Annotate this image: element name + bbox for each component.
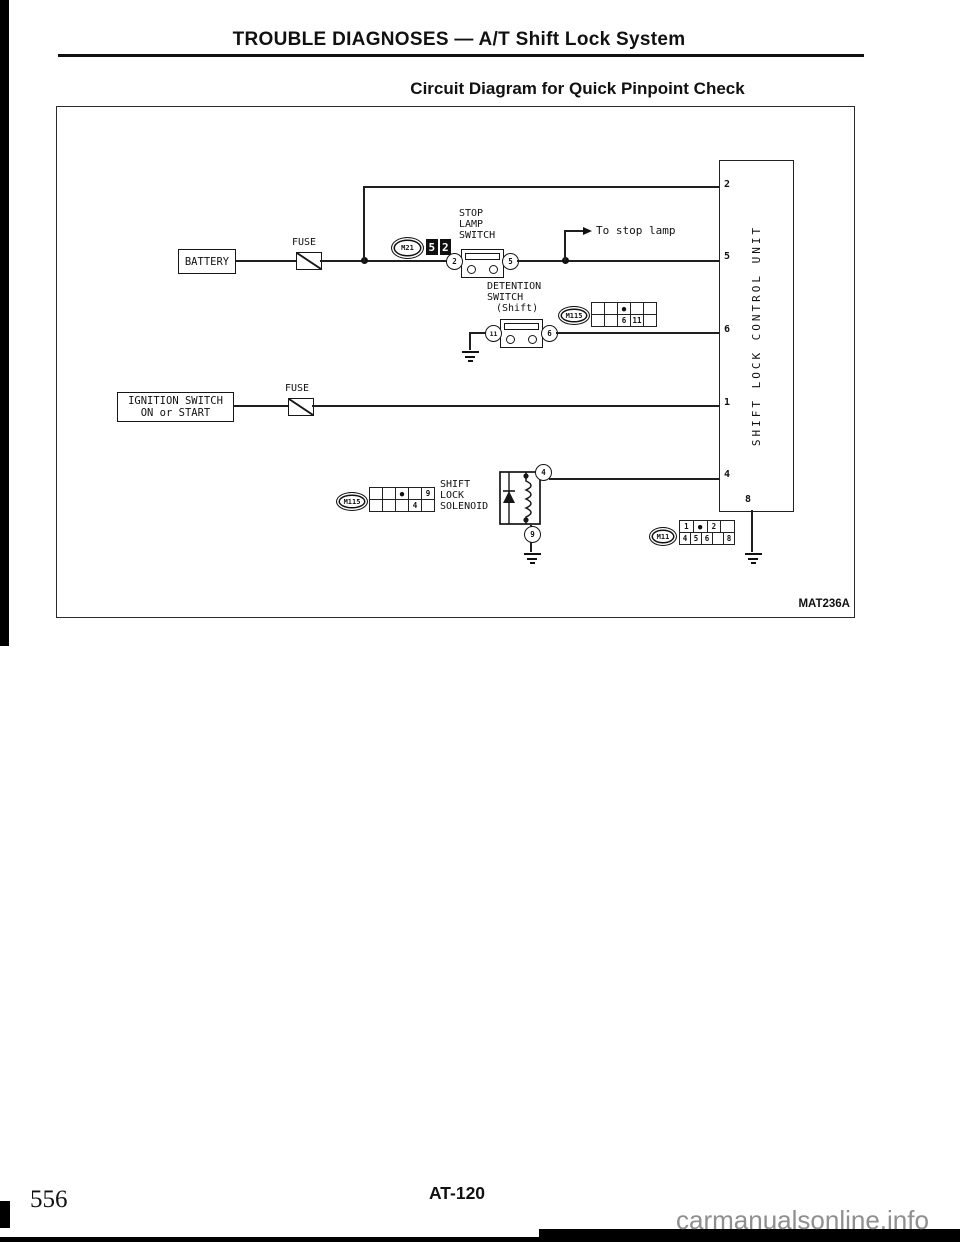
ignition-switch-label-1: IGNITION SWITCH — [128, 395, 223, 407]
wire-detention-to-unit6 — [556, 332, 719, 334]
to-stop-lamp-label: To stop lamp — [596, 225, 675, 236]
fuse-symbol-battery — [296, 252, 322, 270]
unit-terminal-4: 4 — [724, 469, 730, 480]
wire-stop-lamp-riser — [564, 231, 566, 261]
terminal-circle-detention-11: 11 — [485, 325, 502, 342]
fuse-symbol-ignition — [288, 398, 314, 416]
unit-terminal-6: 6 — [724, 324, 730, 335]
page-number: 556 — [30, 1186, 68, 1214]
scan-edge-mark — [0, 1201, 10, 1228]
switch-contact-bar — [504, 323, 539, 330]
stop-lamp-switch-label-2: LAMP — [459, 219, 483, 230]
wire-top-terminal2 — [363, 186, 719, 188]
wire-solenoid-to-unit4 — [549, 478, 719, 480]
wire-battery-to-fuse — [236, 260, 296, 262]
switch-contact-point — [489, 265, 498, 274]
detention-switch-symbol — [500, 319, 543, 348]
connector-grid-m115-solenoid: ●94 — [369, 487, 435, 512]
solenoid-label-2: LOCK — [440, 490, 464, 501]
connector-grid-m115-detention: ●611 — [591, 302, 657, 327]
wire-fuse-to-stop-switch — [320, 260, 448, 262]
detention-switch-label-2: SWITCH — [487, 292, 523, 303]
switch-contact-point — [506, 335, 515, 344]
ground-symbol-detention — [461, 351, 479, 362]
terminal-circle-solenoid-9: 9 — [524, 526, 541, 543]
manual-page: TROUBLE DIAGNOSES — A/T Shift Lock Syste… — [0, 0, 960, 1242]
unit-terminal-8: 8 — [745, 494, 751, 505]
solenoid-label-1: SHIFT — [440, 479, 470, 490]
detention-switch-label-3: (Shift) — [496, 303, 538, 314]
unit-terminal-5: 5 — [724, 251, 730, 262]
wire-fuse-to-unit1 — [312, 405, 719, 407]
wire-riser-to-terminal2 — [363, 187, 365, 262]
connector-oval-m21: M21 — [391, 237, 424, 259]
stop-lamp-switch-label-1: STOP — [459, 208, 483, 219]
control-unit-label: SHIFT LOCK CONTROL UNIT — [751, 224, 764, 445]
connector-oval-m11: M11 — [649, 527, 677, 546]
page-header-title: TROUBLE DIAGNOSES — A/T Shift Lock Syste… — [0, 29, 918, 51]
scan-edge-strip — [0, 0, 9, 646]
wire-ignition-to-fuse — [233, 405, 288, 407]
fuse-battery-label: FUSE — [292, 237, 316, 248]
terminal-circle-stop-2: 2 — [446, 253, 463, 270]
unit-terminal-1: 1 — [724, 397, 730, 408]
control-unit-label-wrap: SHIFT LOCK CONTROL UNIT — [733, 162, 781, 508]
switch-contact-point — [528, 335, 537, 344]
connector-m21-label: M21 — [401, 244, 414, 252]
battery-label: BATTERY — [185, 256, 229, 268]
wire-detention-ground-drop — [469, 332, 471, 350]
shift-lock-solenoid-symbol — [499, 471, 541, 526]
figure-code: MAT236A — [795, 598, 850, 610]
ground-symbol-solenoid — [523, 553, 541, 564]
ignition-switch-label-2: ON or START — [141, 407, 211, 419]
diagram-title: Circuit Diagram for Quick Pinpoint Check — [370, 79, 785, 99]
ignition-switch-box: IGNITION SWITCH ON or START — [117, 392, 234, 422]
fuse-ignition-label: FUSE — [285, 383, 309, 394]
unit-terminal-2: 2 — [724, 179, 730, 190]
page-code: AT-120 — [0, 1183, 914, 1204]
detention-switch-label-1: DETENTION — [487, 281, 541, 292]
connector-m21-code-cells: 52 — [426, 239, 451, 255]
battery-box: BATTERY — [178, 249, 236, 274]
connector-oval-m115-solenoid: M115 — [336, 492, 368, 511]
connector-grid-m11: 1●24568 — [679, 520, 735, 545]
wire-stop-lamp-arrow — [564, 230, 584, 232]
switch-contact-point — [467, 265, 476, 274]
wire-unit8-ground-drop — [751, 510, 753, 552]
watermark: carmanualsonline.info — [676, 1205, 929, 1236]
switch-contact-bar — [465, 253, 500, 260]
solenoid-label-3: SOLENOID — [440, 501, 488, 512]
wire-stop-switch-to-unit5 — [517, 260, 719, 262]
arrow-right-icon — [583, 227, 592, 235]
connector-oval-m115-detention: M115 — [558, 306, 590, 325]
terminal-circle-solenoid-4: 4 — [535, 464, 552, 481]
header-rule — [58, 54, 864, 57]
stop-lamp-switch-label-3: SWITCH — [459, 230, 495, 241]
ground-symbol-unit — [744, 553, 762, 564]
stop-lamp-switch-symbol — [461, 249, 504, 278]
